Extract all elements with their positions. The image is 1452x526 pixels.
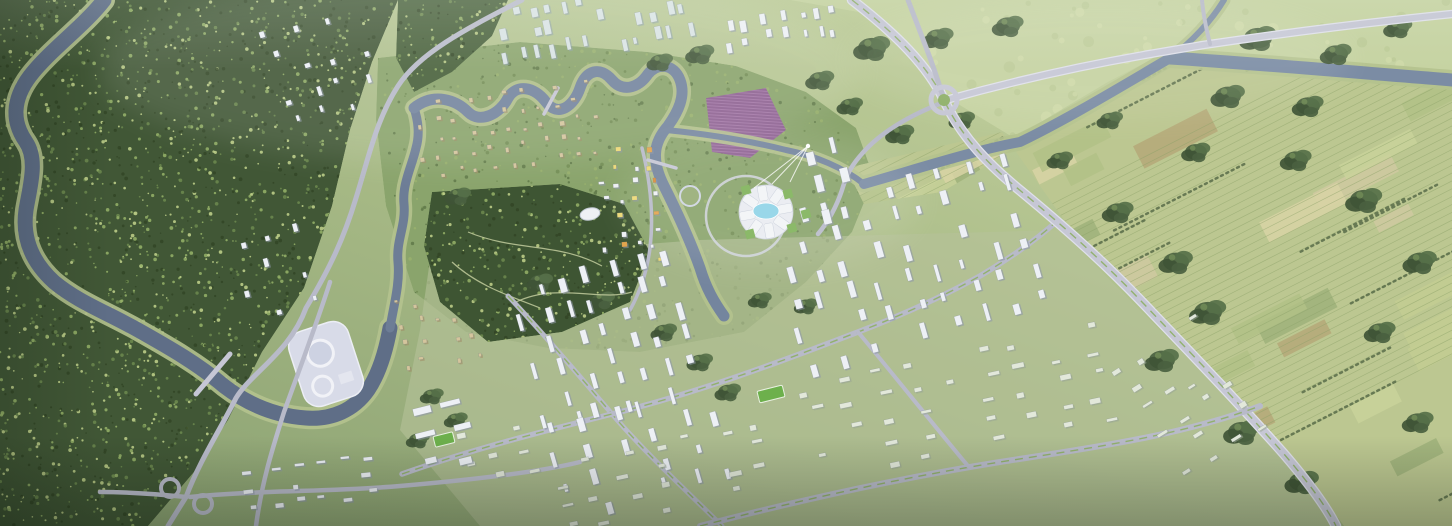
vignette-bottom [0, 436, 1452, 526]
city-masterplan-photo [0, 0, 1452, 526]
masterplan-svg [0, 0, 1452, 526]
vignette-left [0, 0, 110, 526]
vignette-top [0, 0, 1452, 70]
haze-glare [620, 130, 920, 270]
